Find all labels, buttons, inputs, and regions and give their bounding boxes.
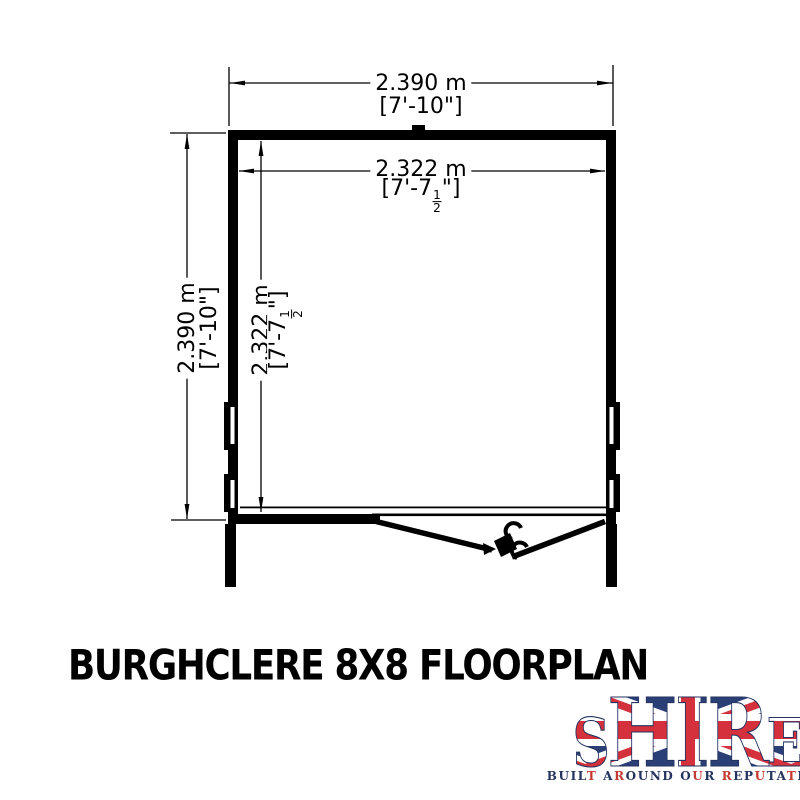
dim-height-inner-imperial: [7'-712"] <box>267 286 305 375</box>
shire-logo: SHIRE <box>572 688 800 778</box>
dim-width-outer-metric: 2.390 m <box>370 72 471 96</box>
fraction: 12 <box>432 189 442 214</box>
dim-width-inner-imperial: [7'-712"] <box>377 177 466 215</box>
logo-tagline: BUILT AROUND OUR REPUTATION <box>547 769 800 783</box>
dim-width-outer-imperial: [7'-10"] <box>374 95 467 119</box>
door-post-right <box>606 524 617 587</box>
shire-logo-word: SHIRE <box>573 688 800 778</box>
page-title: BURGHCLERE 8X8 FLOORPLAN <box>68 641 648 690</box>
door-post-left <box>225 524 236 587</box>
fraction: 12 <box>279 309 304 319</box>
top-wall-notch <box>412 125 425 131</box>
wall-slots <box>231 407 614 508</box>
double-door-open <box>370 516 605 558</box>
dim-height-outer-imperial: [7'-10"] <box>198 281 222 374</box>
floorplan-page: 2.390 m [7'-10"] 2.322 m [7'-712"] 2.390… <box>0 0 800 800</box>
